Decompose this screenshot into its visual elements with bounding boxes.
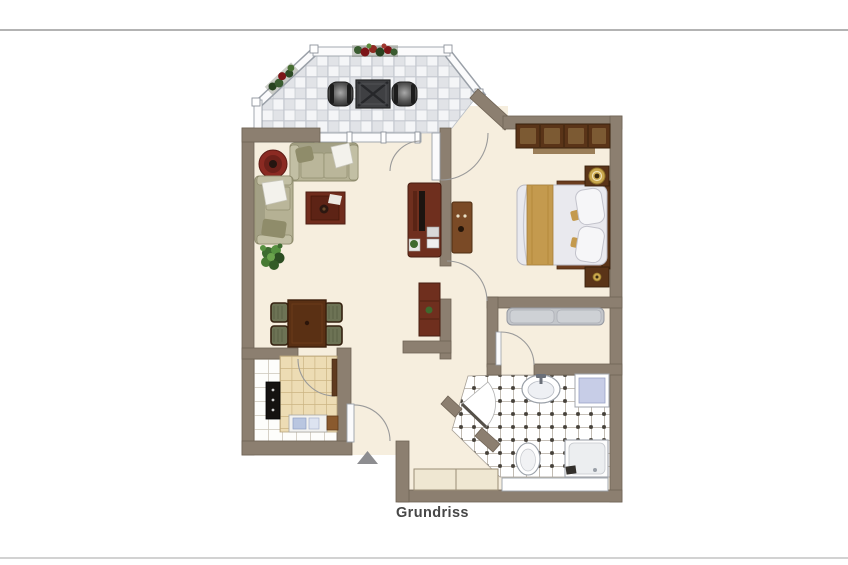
nook-door-leaf [496, 332, 501, 365]
bed-runner [527, 185, 553, 265]
toilet [516, 443, 540, 475]
sofa-vertical [255, 176, 293, 244]
cutting-board [327, 416, 338, 430]
wall-bath-top-jamb [487, 364, 501, 375]
bathroom-window [502, 478, 608, 491]
wall-living-alcove [403, 341, 451, 353]
flower-box-top [352, 44, 398, 58]
bedroom-furniture [516, 124, 610, 287]
washbasin [522, 374, 560, 403]
wall-living-top [242, 128, 320, 142]
pillow-bottom [574, 225, 605, 264]
kitchen-door-leaf [332, 359, 337, 396]
pillow-top [575, 187, 606, 226]
red-sideboard [419, 283, 440, 336]
round-rug [259, 150, 287, 178]
wall-outer-left [242, 128, 254, 455]
built-in-closet [414, 469, 498, 490]
kitchen-sink [289, 415, 327, 432]
balcony-chair-right [392, 82, 417, 106]
wall-bottom [398, 490, 622, 502]
tv-cabinet [408, 183, 441, 257]
double-bed [517, 181, 610, 269]
nightstand-bottom [585, 267, 609, 287]
shower [565, 440, 608, 477]
stove [266, 382, 280, 419]
floor-plan-page: Grundriss [0, 0, 848, 565]
wall-outer-right [610, 116, 622, 502]
balcony-table [356, 80, 390, 108]
floor-plan-drawing [0, 0, 848, 565]
wall-center-upper [440, 128, 451, 266]
nightstand-top [585, 166, 609, 186]
plan-caption: Grundriss [396, 505, 469, 521]
coffee-table [306, 192, 345, 224]
wall-hall-step [396, 441, 409, 502]
entrance-door-leaf [347, 404, 354, 442]
wall-bath-top [534, 364, 622, 375]
wall-kitchen-bottom [242, 441, 352, 455]
sofa-horizontal [290, 143, 358, 181]
balcony-chair-left [328, 82, 353, 106]
hall-bench [507, 308, 604, 325]
washing-machine [575, 374, 609, 407]
wall-bedroom-bottom [487, 297, 622, 308]
hall-cabinet [452, 202, 472, 253]
balcony-door-leaf [432, 133, 440, 180]
